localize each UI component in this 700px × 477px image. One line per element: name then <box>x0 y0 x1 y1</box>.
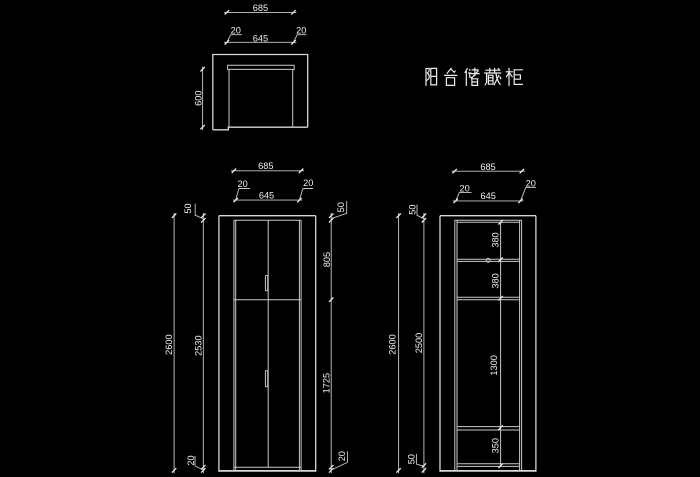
svg-text:685: 685 <box>480 162 495 172</box>
svg-text:50: 50 <box>336 202 346 212</box>
svg-text:2500: 2500 <box>414 333 424 353</box>
svg-text:645: 645 <box>481 191 496 201</box>
svg-text:20: 20 <box>237 179 247 189</box>
svg-text:685: 685 <box>253 3 268 13</box>
svg-text:20: 20 <box>186 455 196 465</box>
svg-text:380: 380 <box>490 273 500 288</box>
svg-text:600: 600 <box>193 91 203 106</box>
svg-text:685: 685 <box>258 161 273 171</box>
svg-text:50: 50 <box>183 203 193 213</box>
svg-text:50: 50 <box>406 454 416 464</box>
svg-text:20: 20 <box>231 26 241 36</box>
svg-text:1725: 1725 <box>322 373 332 393</box>
svg-text:380: 380 <box>490 232 500 247</box>
svg-text:1300: 1300 <box>489 355 499 375</box>
svg-text:350: 350 <box>490 438 500 453</box>
svg-text:20: 20 <box>337 451 347 461</box>
svg-text:20: 20 <box>303 178 313 188</box>
svg-text:2530: 2530 <box>193 335 203 355</box>
svg-text:645: 645 <box>253 33 268 43</box>
svg-text:2600: 2600 <box>164 334 174 354</box>
svg-text:645: 645 <box>259 191 274 201</box>
svg-text:2600: 2600 <box>388 334 398 354</box>
svg-text:20: 20 <box>526 178 536 188</box>
svg-text:20: 20 <box>296 26 306 36</box>
svg-text:20: 20 <box>459 183 469 193</box>
svg-text:50: 50 <box>408 204 418 214</box>
svg-text:805: 805 <box>322 252 332 267</box>
